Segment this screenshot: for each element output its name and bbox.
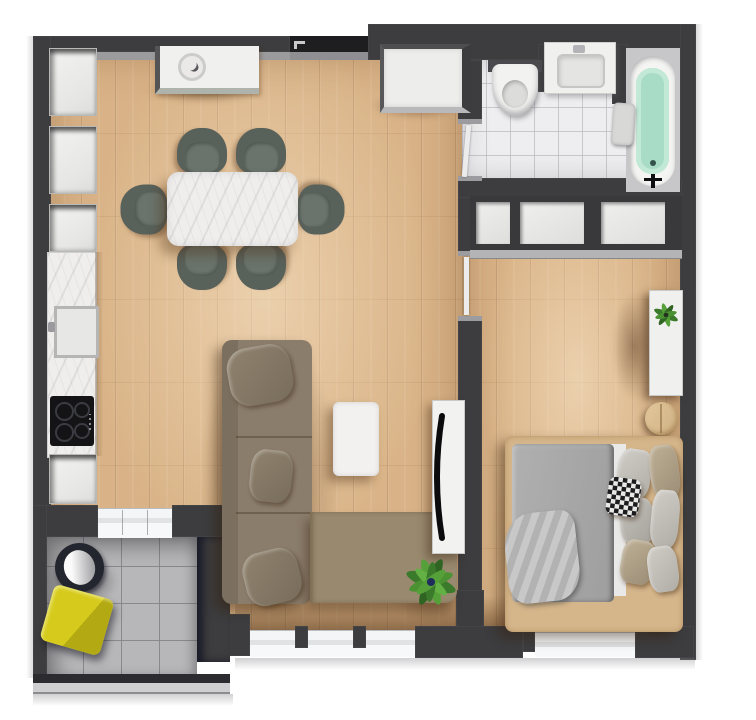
tv-icon: [430, 412, 446, 542]
wardrobe-panel-2: [520, 202, 584, 244]
burner-4: [74, 423, 90, 439]
wall-south-mid: [415, 626, 523, 658]
coffee-table: [333, 402, 379, 476]
dining-table: [167, 172, 298, 246]
chair-seat: [135, 193, 165, 227]
sofa-pillow: [247, 448, 294, 504]
bedroom-door-jamb-bottom: [458, 316, 482, 321]
toilet-bowl: [502, 80, 528, 108]
cooktop: [50, 396, 94, 446]
exterior-shadow-south: [235, 658, 695, 670]
basin-faucet-icon: [573, 45, 585, 53]
tub-drain-icon: [650, 160, 656, 166]
balcony-railing: [33, 674, 230, 683]
bed-blanket: [501, 508, 582, 605]
sideboard: [155, 46, 259, 94]
dining-chair: [298, 185, 345, 235]
chair-seat: [185, 246, 219, 276]
wash-basin: [557, 54, 605, 88]
kitchen-tall-cabinet-2: [49, 126, 97, 194]
kitchen-sink: [54, 306, 99, 358]
kitchen-faucet-icon: [48, 322, 55, 332]
accent-pillow: [605, 476, 643, 518]
kitchen-tall-cabinet-1: [49, 48, 97, 116]
bathroom-door-jamb-top: [458, 119, 482, 124]
entrance-door-handle-stem: [294, 41, 297, 49]
chair-seat: [244, 142, 278, 172]
living-window-mullion-2: [353, 626, 366, 648]
bedroom-door: [464, 257, 469, 315]
exterior-shadow-balcony: [33, 694, 233, 706]
wardrobe-panel-3: [601, 202, 665, 244]
exterior-shadow-right: [696, 24, 703, 660]
dining-chair: [177, 128, 227, 175]
balcony-door-divider-2: [147, 510, 148, 535]
decorative-bowl-icon: [178, 53, 206, 81]
vanity: [544, 42, 616, 94]
balcony-door-divider-1: [122, 510, 123, 535]
wardrobe-panel-1: [476, 202, 510, 244]
bedside-table: [645, 402, 678, 435]
chair-seat: [185, 142, 219, 172]
cooktop-controls: [89, 414, 91, 430]
chair-cushion: [59, 546, 99, 589]
entrance-threshold: [290, 52, 368, 60]
wall-south-post: [228, 614, 250, 656]
tub-faucet-stem: [651, 174, 655, 188]
dresser-plant-icon: [650, 298, 682, 332]
bathtub-water: [636, 68, 669, 174]
entrance-door: [290, 36, 368, 52]
kitchen-base-cabinet: [49, 454, 97, 504]
floorplan-canvas: [0, 0, 756, 720]
living-window-mullion-1: [295, 626, 308, 648]
plant-icon: [400, 546, 462, 616]
dining-chair: [177, 243, 227, 290]
entry-cabinet: [380, 44, 471, 113]
chair-seat: [244, 246, 278, 276]
kitchen-tall-cabinet-3: [49, 204, 97, 252]
towel: [611, 102, 636, 145]
balcony-door: [98, 508, 172, 538]
wardrobe: [470, 196, 682, 250]
burner-2: [74, 402, 90, 418]
exterior-shadow-left: [26, 36, 33, 678]
dining-chair: [236, 243, 286, 290]
balcony-wall-west: [33, 505, 47, 678]
sofa-seam-1: [236, 436, 312, 438]
sofa-seam-2: [236, 512, 312, 514]
living-window: [250, 630, 415, 657]
burner-3: [55, 423, 74, 442]
burner-1: [55, 402, 74, 421]
wardrobe-front-rail: [470, 250, 682, 259]
bedroom-window: [535, 632, 635, 657]
dining-chair: [236, 128, 286, 175]
balcony-railing-parapet: [33, 683, 230, 694]
chair-seat: [301, 193, 331, 227]
bowl-detail: [184, 58, 200, 74]
dining-chair: [121, 185, 168, 235]
